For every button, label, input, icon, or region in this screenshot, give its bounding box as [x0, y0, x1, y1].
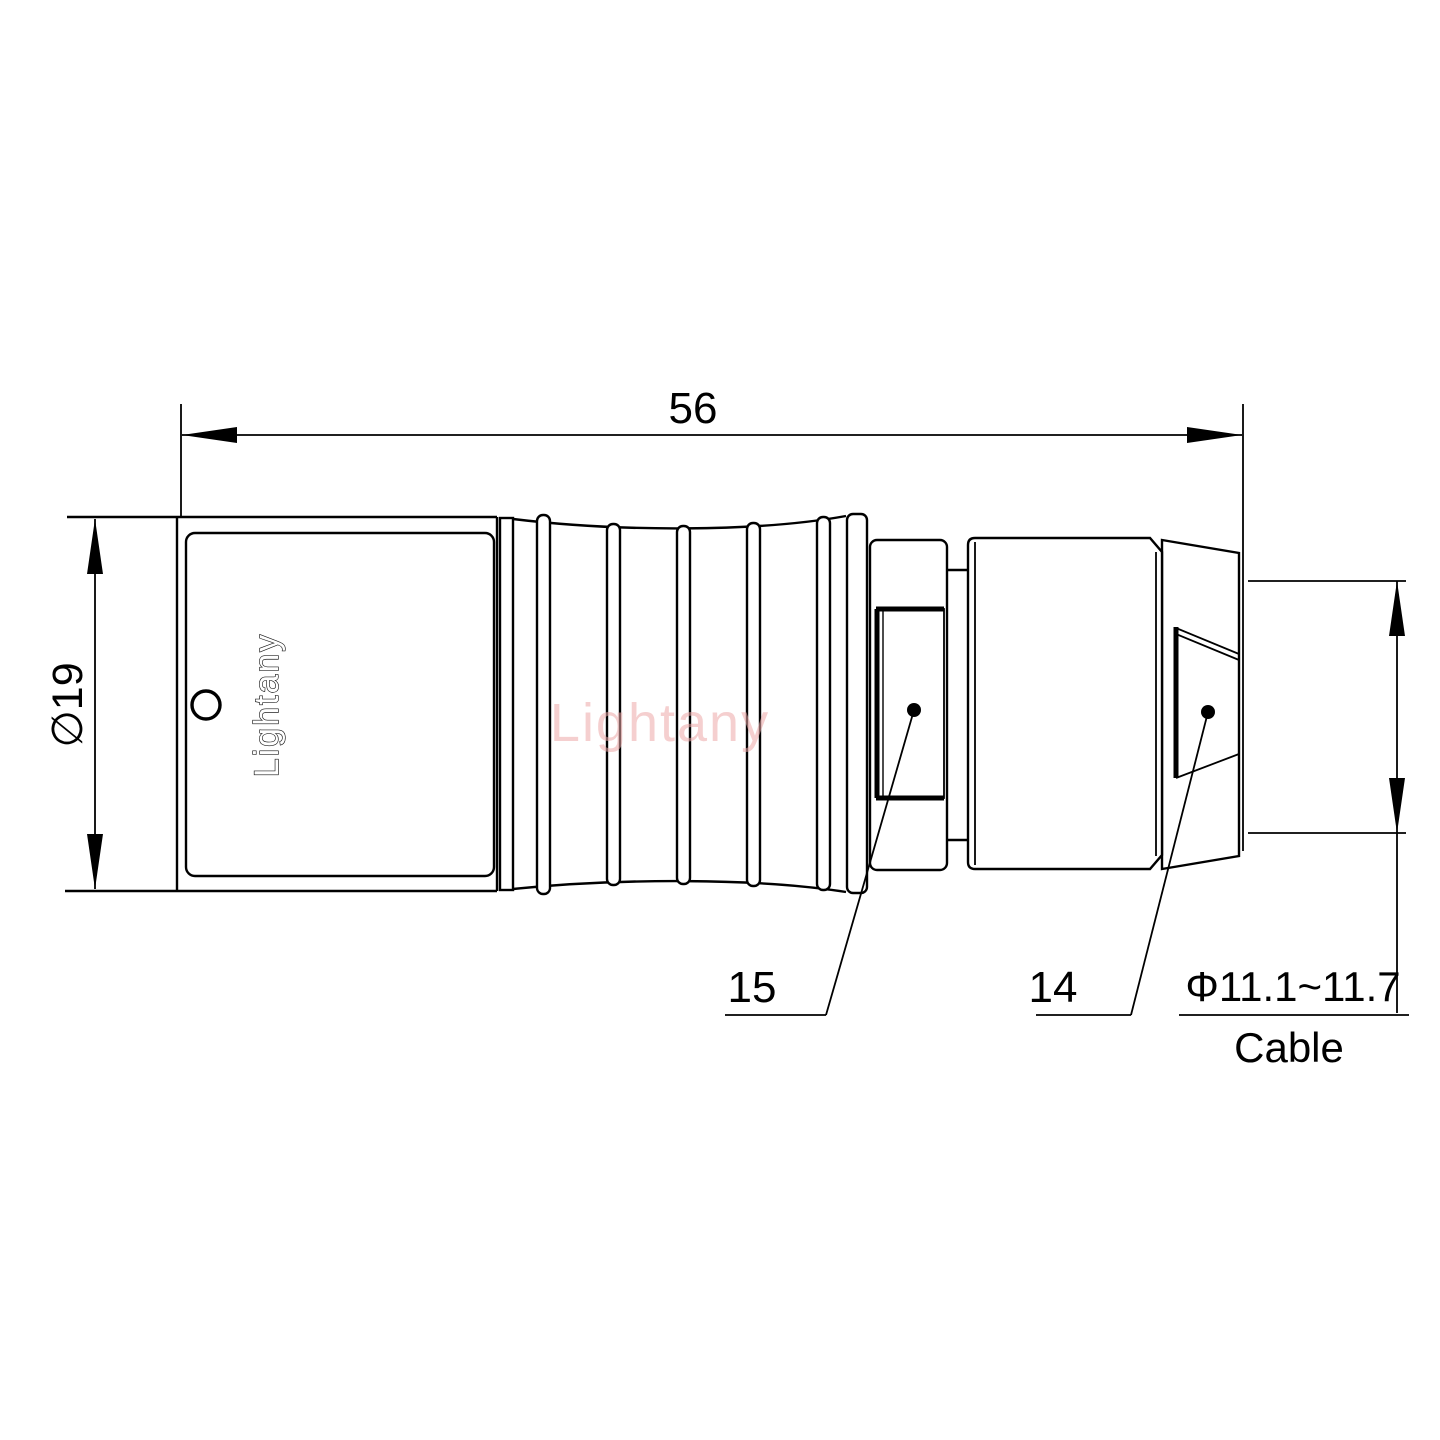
body-engraving-text: Lightany	[248, 633, 286, 778]
grip-rib	[537, 515, 550, 894]
body-hole	[192, 691, 220, 719]
technical-drawing-page: Lightany Lightany 56 ∅19 Φ11.1~11.7 Cabl…	[0, 0, 1440, 1440]
body-diameter-label: ∅19	[44, 662, 92, 747]
dim-arrow-up	[1389, 581, 1405, 636]
dim-arrow-down	[87, 834, 103, 889]
dim-arrow-down	[1389, 778, 1405, 833]
collet-housing	[870, 540, 968, 870]
dim-arrow-right	[1187, 427, 1242, 443]
grip-collar	[500, 518, 513, 890]
grip-end-collar	[847, 514, 867, 893]
part-label-nut: 14	[1029, 963, 1078, 1012]
body-inner-sleeve	[186, 533, 494, 876]
watermark-text: Lightany	[550, 693, 770, 753]
cable-word-label: Cable	[1234, 1024, 1344, 1071]
connector-line-art: Lightany Lightany 56 ∅19 Φ11.1~11.7 Cabl…	[0, 0, 1440, 1440]
coupling-nut	[968, 538, 1162, 869]
part-label-collet: 15	[728, 963, 777, 1012]
overall-length-label: 56	[669, 384, 718, 433]
dim-arrow-left	[182, 427, 237, 443]
back-taper	[1162, 540, 1239, 869]
cable-range-label: Φ11.1~11.7	[1185, 963, 1400, 1010]
main-body: Lightany	[65, 517, 497, 891]
dimension-body-diameter: ∅19	[44, 519, 103, 889]
dim-arrow-up	[87, 519, 103, 574]
grip-rib	[817, 517, 830, 890]
